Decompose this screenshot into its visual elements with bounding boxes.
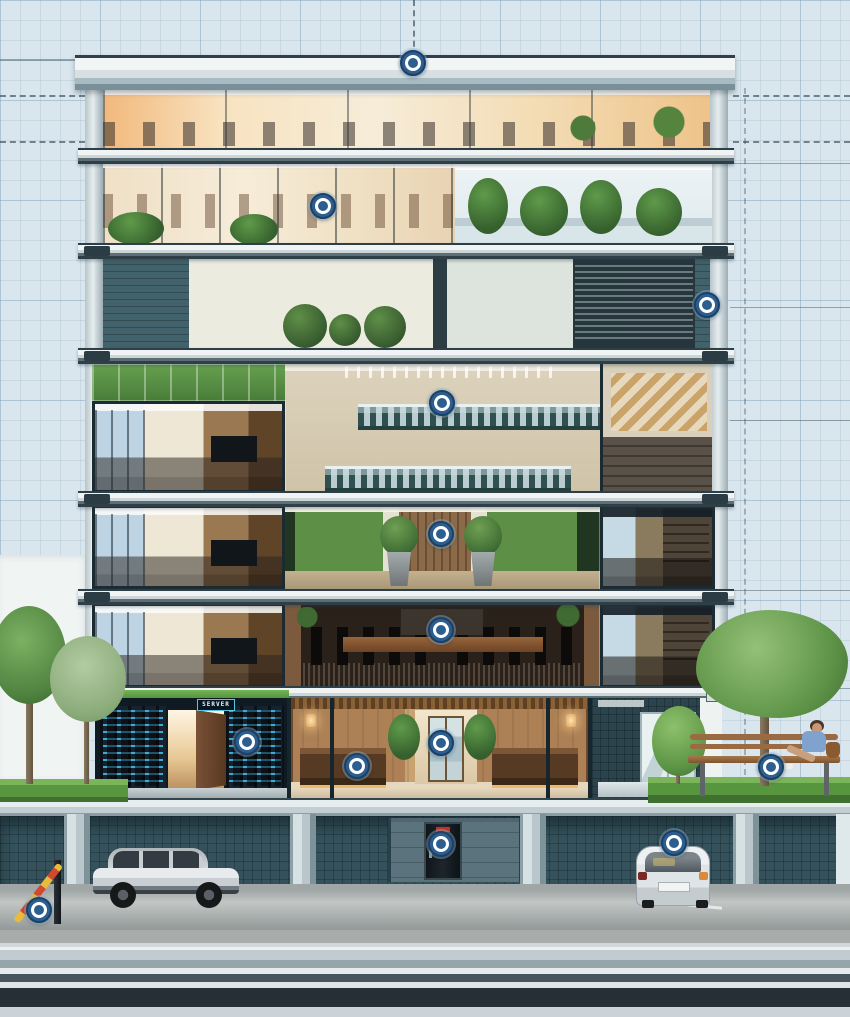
hotspot-roof[interactable] bbox=[400, 50, 426, 76]
hotspot-server-room[interactable] bbox=[234, 729, 260, 755]
hotspot-bench[interactable] bbox=[758, 754, 784, 780]
building-cross-section-scene: SERVER bbox=[0, 0, 850, 1017]
hotspot-parked-car[interactable] bbox=[661, 830, 687, 856]
hotspot-lobby-door[interactable] bbox=[428, 730, 454, 756]
hotspot-meeting-room[interactable] bbox=[428, 617, 454, 643]
hotspot-service-door[interactable] bbox=[428, 831, 454, 857]
hotspot-barrier[interactable] bbox=[26, 897, 52, 923]
hotspot-staircase[interactable] bbox=[429, 390, 455, 416]
hotspot-staff-office[interactable] bbox=[310, 193, 336, 219]
hotspot-reception[interactable] bbox=[344, 753, 370, 779]
hotspot-right-facade[interactable] bbox=[694, 292, 720, 318]
hotspot-green-lounge[interactable] bbox=[428, 521, 454, 547]
hotspot-layer bbox=[0, 0, 850, 1017]
